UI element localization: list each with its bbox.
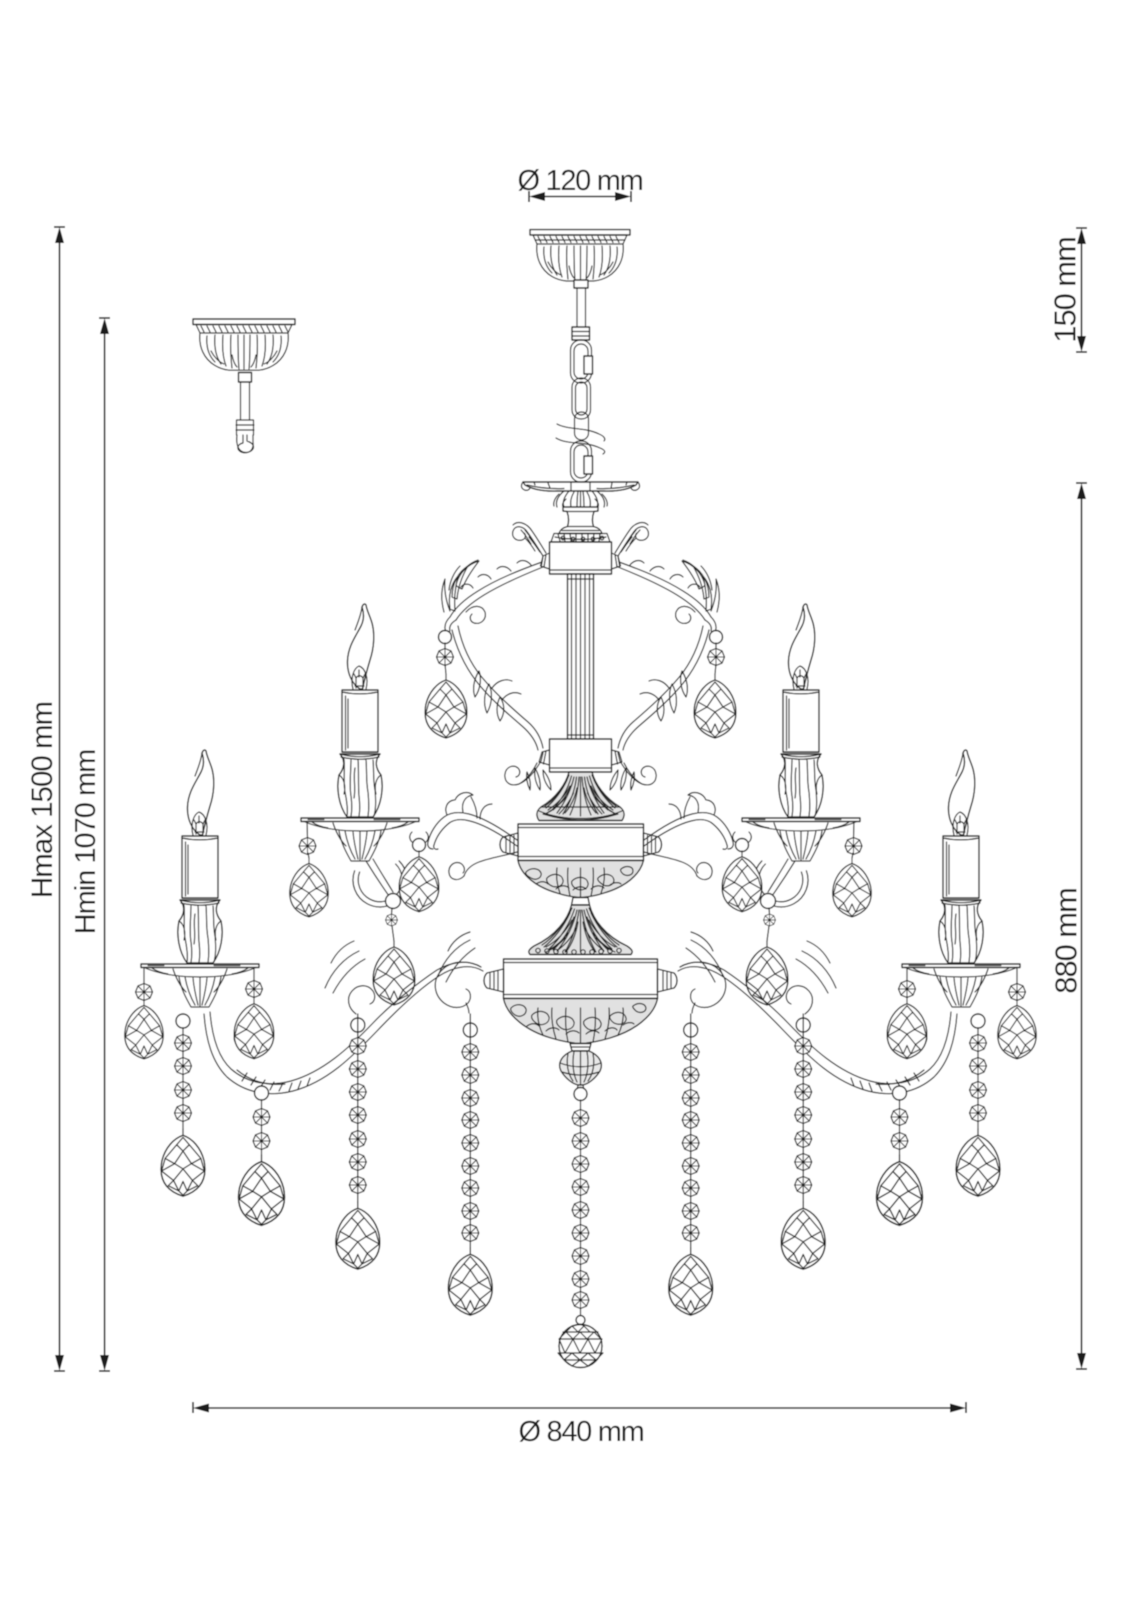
svg-text:Ø 840 mm: Ø 840 mm [519,1416,644,1448]
svg-text:150 mm: 150 mm [1048,237,1083,342]
svg-text:Hmin 1070 mm: Hmin 1070 mm [70,750,102,935]
svg-text:Hmax 1500 mm: Hmax 1500 mm [26,702,59,898]
svg-text:880 mm: 880 mm [1049,888,1084,993]
svg-text:Ø 120 mm: Ø 120 mm [518,165,643,197]
